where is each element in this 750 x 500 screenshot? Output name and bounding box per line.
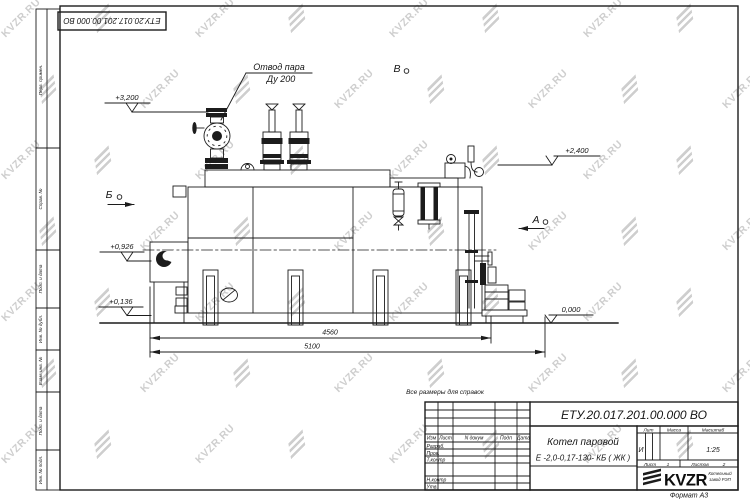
tb-row-nkontr: Н.контр (427, 478, 447, 484)
frame-col-perv: Перв. примен. (38, 65, 43, 96)
elevation-0000-label: 0,000 (562, 305, 582, 314)
tb-sheets-value: 2 (722, 462, 726, 468)
tb-h-list: Лист (438, 436, 452, 442)
tb-sheets-label: Листов (690, 462, 709, 468)
tb-h-podp: Подп (500, 436, 512, 442)
frame-col-sprav: Справ. № (38, 189, 43, 210)
dim-5100: 5100 (304, 344, 320, 351)
frame-col-inv-dubl: Инв. № дубл. (38, 315, 43, 343)
drawing-sheet: KVZR.RUKVZR.RUKVZR.RUKVZR.RUKVZR.RUKVZR.… (0, 0, 750, 500)
burner (150, 242, 188, 323)
safety-valve (260, 104, 284, 170)
tb-h-izm: Изм (427, 436, 437, 442)
drum-dome (241, 164, 254, 171)
frame-col-vzam: Взам. инв. № (38, 357, 43, 385)
view-b-label: Б (106, 189, 113, 201)
dim-4560: 4560 (322, 330, 338, 337)
tb-scale-value: 1:25 (706, 447, 720, 454)
frame-col-podp1: Подп. и дата (38, 264, 43, 293)
tb-product-model: Е -2,0-0,17-130- КБ ( ЖК ) (536, 454, 631, 463)
water-level-gauge (418, 183, 440, 229)
kvzr-logo-sub2: завод РЭП (708, 477, 731, 482)
elevation-0926-label: +0,926 (110, 242, 134, 251)
frame-col-podp2: Подп. и дата (38, 406, 43, 435)
boiler-legs (203, 270, 471, 325)
manhole (221, 288, 238, 302)
top-stamp-designation: ЕТУ.20.017.201.00.000 ВО (63, 16, 160, 25)
view-a-label: А (531, 214, 539, 226)
tb-product-name: Котел паровой (547, 437, 619, 448)
format-label: Формат А3 (670, 493, 708, 500)
tb-designation: ЕТУ.20.017.201.00.000 ВО (561, 408, 707, 422)
tb-lit-label: Лит (643, 428, 654, 434)
frame-col-inv-podl: Инв. № подл. (38, 456, 43, 485)
elevation-2400-label: +2,400 (565, 146, 589, 155)
top-right-fittings (445, 146, 484, 178)
tb-sheet-value: 1 (667, 462, 670, 468)
tb-h-ndok: N докум (465, 436, 484, 442)
steam-note-line1: Отвод пара (253, 62, 304, 72)
tb-massa-label: Масса (667, 428, 682, 434)
tb-lit-value: И (638, 447, 644, 454)
tb-sheet-label: Лист (643, 462, 656, 468)
view-v-label: В (393, 63, 400, 75)
kvzr-logo: KVZR (664, 472, 708, 490)
safety-valve-2 (287, 104, 311, 170)
feed-pump-unit (480, 263, 527, 323)
boiler-drawing-sheet: Перв. примен. Справ. № Подп. и дата Инв.… (0, 0, 750, 500)
steam-outlet-valve (192, 108, 230, 169)
boiler-side-view (100, 104, 618, 325)
tb-row-utv: Утв. (427, 485, 438, 491)
tb-row-prov: Пров. (427, 451, 440, 457)
elevation-0136-label: +0,136 (109, 297, 133, 306)
tb-scale-label: Масштаб (702, 428, 725, 434)
kvzr-logo-sub1: Котельный (708, 471, 732, 476)
level-gauge-cylinder (393, 182, 404, 230)
steam-note-line2: Ду 200 (266, 74, 295, 84)
boiler-drum (205, 170, 390, 187)
tb-row-tkontr: Т.контр (427, 458, 446, 464)
downcomer-pipe (464, 210, 492, 308)
elevation-3200-label: +3,200 (115, 93, 139, 102)
reference-note: Все размеры для справок (406, 388, 485, 396)
tb-h-data: Дата (516, 436, 530, 442)
tb-row-razrab: Разраб. (427, 444, 445, 450)
